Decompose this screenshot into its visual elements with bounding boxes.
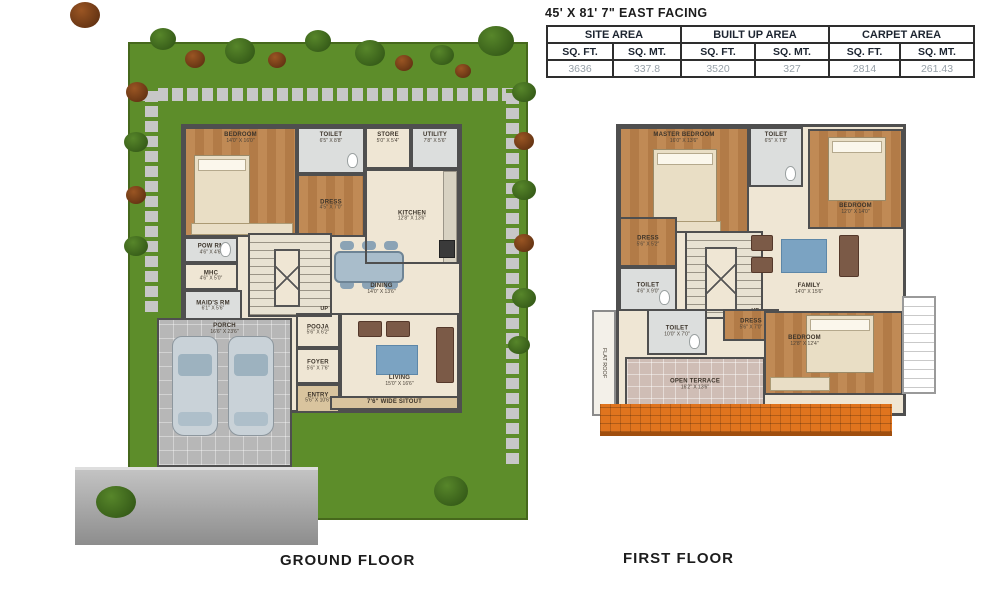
room-label: DRESS <box>621 236 675 243</box>
room-label: TOILET <box>621 283 675 290</box>
room-label: UTILITY <box>413 132 457 139</box>
room-store: STORE5'0" X 5'4" <box>365 127 411 169</box>
tree-icon <box>395 55 413 71</box>
room-bedroom: BEDROOM14'0" X 16'0" <box>184 127 297 237</box>
bed-icon <box>828 137 886 201</box>
tree-icon <box>305 30 331 52</box>
room-dress: DRESS5'6" X 5'2" <box>619 217 677 267</box>
room-dress: DRESS4'5" X 7'0" <box>297 174 365 237</box>
room-label: TOILET <box>299 132 363 139</box>
room-dims: 4'5" X 7'0" <box>299 206 363 212</box>
room-dims: 7'8" X 5'6" <box>413 139 457 145</box>
bed-icon <box>194 155 250 227</box>
room-label: DRESS <box>299 199 363 206</box>
room-dims: 16'6" X 23'6" <box>159 330 290 336</box>
room-label: POW RM <box>186 244 236 251</box>
sofa-icon <box>358 321 382 337</box>
area-table-cell: SQ. MT. <box>900 43 974 60</box>
chair-icon <box>340 241 354 250</box>
tree-icon <box>268 52 286 68</box>
stairs-up-label: UP <box>320 306 328 312</box>
tree-icon <box>70 2 100 28</box>
room-label: TOILET <box>751 132 801 139</box>
tree-icon <box>124 132 148 152</box>
area-table-subheader-row: SQ. FT. SQ. MT. SQ. FT. SQ. MT. SQ. FT. … <box>547 43 974 60</box>
room-label: OPEN TERRACE <box>627 379 763 386</box>
roof-tiles <box>600 404 892 436</box>
room-dims: 6'5" X 7'8" <box>751 139 801 145</box>
room-dims: 14'0" X 16'0" <box>186 139 295 145</box>
room-family: FAMILY14'0" X 15'6" <box>743 227 875 319</box>
room-dims: 4'6" X 9'0" <box>621 289 675 295</box>
room-dims: 5'6" X 6'2" <box>298 331 338 337</box>
tree-icon <box>124 236 148 256</box>
area-table-cell: 327 <box>755 60 829 77</box>
wardrobe-icon <box>770 377 830 391</box>
room-label: BEDROOM <box>810 203 901 210</box>
room-dims: 6'1" X 5'6" <box>186 307 240 313</box>
sofa-icon <box>751 257 773 273</box>
room-pooja: POOJA5'6" X 6'2" <box>296 313 340 348</box>
area-table-group-row: SITE AREA BUILT UP AREA CARPET AREA <box>547 26 974 43</box>
tree-icon <box>126 186 146 204</box>
tree-icon <box>512 288 536 308</box>
flat-roof: FLAT ROOF <box>592 310 616 416</box>
bed-icon <box>653 149 717 223</box>
room-label: MASTER BEDROOM <box>621 132 747 139</box>
room-label: FAMILY <box>743 283 875 290</box>
room-label: MAID'S RM <box>186 300 240 307</box>
tree-icon <box>126 82 148 102</box>
sofa-icon <box>839 235 859 277</box>
area-table-value-row: 3636 337.8 3520 327 2814 261.43 <box>547 60 974 77</box>
bed-icon <box>806 315 874 373</box>
room-bedroom: BEDROOM12'8" X 12'4" <box>764 311 903 395</box>
room-dims: 12'0" X 14'0" <box>810 210 901 216</box>
ground-floor-label: GROUND FLOOR <box>280 552 415 569</box>
tree-icon <box>185 50 205 68</box>
area-table-cell: SQ. MT. <box>613 43 681 60</box>
tree-icon <box>455 64 471 78</box>
room-label: PORCH <box>159 323 290 330</box>
area-table-cell: 261.43 <box>900 60 974 77</box>
area-table-cell: 337.8 <box>613 60 681 77</box>
room-living: LIVING15'0" X 16'6" <box>340 313 459 399</box>
area-table-cell: SQ. MT. <box>755 43 829 60</box>
tree-icon <box>512 82 536 102</box>
tree-icon <box>512 180 536 200</box>
room-label: TOILET <box>649 326 705 333</box>
area-table-cell: BUILT UP AREA <box>681 26 829 43</box>
area-table-cell: SQ. FT. <box>829 43 900 60</box>
plan-title: 45' X 81' 7" EAST FACING <box>545 6 708 20</box>
tree-icon <box>478 26 514 56</box>
first-floor-label: FIRST FLOOR <box>623 550 734 567</box>
tree-icon <box>150 28 176 50</box>
room-label: STORE <box>367 132 409 139</box>
area-table-cell: 3520 <box>681 60 755 77</box>
room-foyer: FOYER5'6" X 7'6" <box>296 348 340 384</box>
room-kitchen: KITCHEN12'8" X 13'6" <box>365 169 459 264</box>
room-pow-rm: POW RM4'6" X 4'6" <box>184 237 238 263</box>
area-table-cell: SQ. FT. <box>681 43 755 60</box>
stair-void <box>274 249 300 307</box>
room-toilet: TOILET6'5" X 7'8" <box>749 127 803 187</box>
flat-roof-label: FLAT ROOF <box>601 348 607 378</box>
shrub-icon <box>96 486 136 518</box>
rug-icon <box>376 345 418 375</box>
room-toilet: TOILET4'6" X 9'0" <box>619 267 677 311</box>
room-dims: 5'0" X 5'4" <box>367 139 409 145</box>
area-table-cell: SITE AREA <box>547 26 681 43</box>
tree-icon <box>225 38 255 64</box>
porch-driveway: PORCH16'6" X 23'6" <box>157 318 292 467</box>
paver-path <box>145 88 158 312</box>
area-table-cell: 2814 <box>829 60 900 77</box>
room-utility: UTILITY7'8" X 5'6" <box>411 127 459 169</box>
tree-icon <box>355 40 385 66</box>
room-toilet: TOILET6'5" X 8'8" <box>297 127 365 174</box>
tree-icon <box>508 336 530 354</box>
room-label: FOYER <box>298 360 338 367</box>
room-dims: 16'2" X 13'6" <box>627 385 763 391</box>
tree-icon <box>514 132 534 150</box>
tree-icon <box>514 234 534 252</box>
room-dims: 16'0" X 13'6" <box>621 139 747 145</box>
stove-icon <box>439 240 455 258</box>
paver-path <box>142 88 520 101</box>
room-dims: 4'6" X 4'6" <box>186 250 236 256</box>
room-label: 7'6" WIDE SITOUT <box>332 399 457 406</box>
car-icon <box>172 336 218 436</box>
room-label: BEDROOM <box>186 132 295 139</box>
floor-plan-sheet: 45' X 81' 7" EAST FACING SITE AREA BUILT… <box>0 0 1000 600</box>
room-dims: 4'6" X 5'0" <box>186 277 236 283</box>
room-label: POOJA <box>298 324 338 331</box>
room-dims: 5'6" X 7'6" <box>298 366 338 372</box>
area-table: SITE AREA BUILT UP AREA CARPET AREA SQ. … <box>546 25 975 78</box>
sofa-icon <box>386 321 410 337</box>
terrace-steps <box>902 296 936 394</box>
room-dims: 5'6" X 5'2" <box>621 242 675 248</box>
room-sitout: 7'6" WIDE SITOUT <box>330 396 459 410</box>
stair-void <box>705 247 737 311</box>
rug-icon <box>781 239 827 273</box>
tree-icon <box>434 476 468 506</box>
area-table-cell: CARPET AREA <box>829 26 974 43</box>
room-label: MHC <box>186 270 236 277</box>
room-dims: 6'5" X 8'8" <box>299 139 363 145</box>
area-table-cell: SQ. FT. <box>547 43 613 60</box>
room-toilet: TOILET10'0" X 7'0" <box>647 309 707 355</box>
room-mhc: MHC4'6" X 5'0" <box>184 263 238 290</box>
sofa-icon <box>436 327 454 383</box>
car-icon <box>228 336 274 436</box>
tree-icon <box>430 45 454 65</box>
room-dims: 10'0" X 7'0" <box>649 332 705 338</box>
area-table-cell: 3636 <box>547 60 613 77</box>
first-floor-house: MASTER BEDROOM16'0" X 13'6" TOILET6'5" X… <box>616 124 906 416</box>
sofa-icon <box>751 235 773 251</box>
room-dims: 14'0" X 15'6" <box>743 290 875 296</box>
room-bedroom: BEDROOM12'0" X 14'0" <box>808 129 903 229</box>
staircase: UP <box>248 233 332 317</box>
